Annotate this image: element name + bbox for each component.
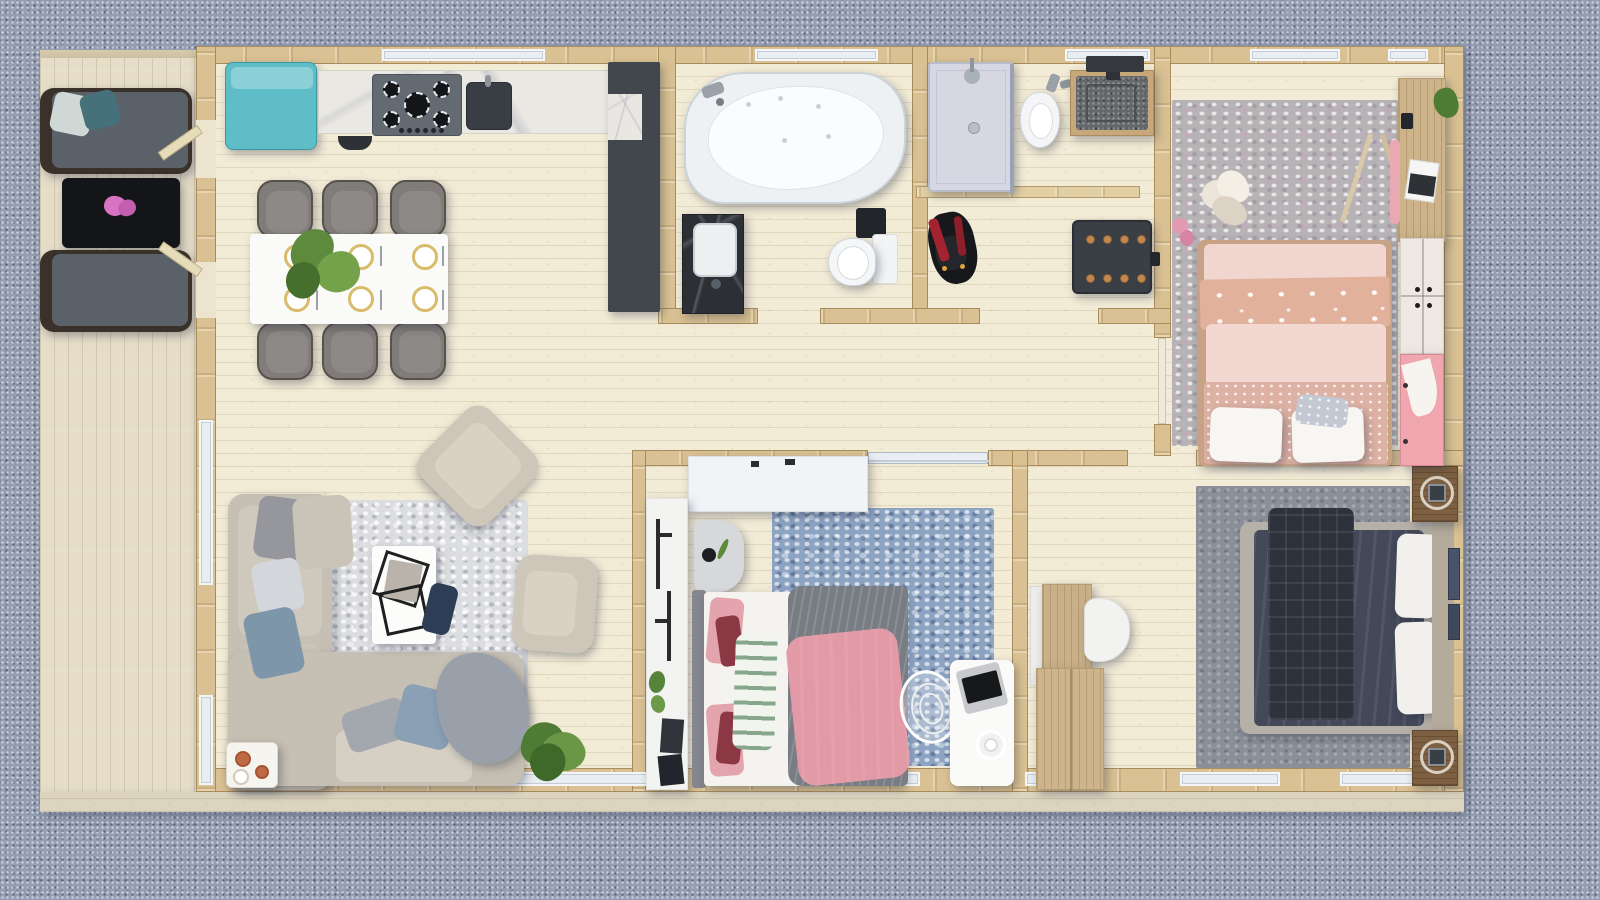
midbedroom-nightstand xyxy=(694,520,744,592)
bathtub-jet-2 xyxy=(778,96,783,101)
cooktop-knob-2 xyxy=(407,128,412,133)
midbed-throw-pink xyxy=(784,627,911,788)
utility-heater-stove xyxy=(1072,220,1152,294)
kitchen-tall-unit-marble-top xyxy=(608,94,642,140)
bathtub-jet-4 xyxy=(782,138,787,143)
cutlery-4 xyxy=(316,290,318,310)
master-bed-quilt-dark xyxy=(1268,508,1354,720)
bath2-sink-granite xyxy=(1076,76,1148,130)
chair-seat xyxy=(331,331,373,373)
heater-dot-2 xyxy=(1103,235,1112,244)
heater-dot-7 xyxy=(1120,274,1129,283)
burner-small-1 xyxy=(383,81,400,98)
glass-door-rail xyxy=(869,460,989,462)
chair-seat xyxy=(266,191,308,233)
backpack-buckle-2 xyxy=(960,264,965,269)
bathtub-faucet-knob xyxy=(716,98,724,106)
shower-tray xyxy=(928,62,1014,192)
utility-backpack xyxy=(926,206,980,290)
serving-tray xyxy=(226,742,278,788)
master-nightstand-north xyxy=(1412,466,1458,522)
wall-rail-hook-1 xyxy=(660,533,672,537)
master-wall-art-2 xyxy=(1448,604,1460,640)
master-wall-art-1 xyxy=(1448,548,1460,600)
cutlery-3 xyxy=(442,246,444,266)
heater-handle xyxy=(1150,252,1160,266)
cup-orange-1 xyxy=(235,751,251,767)
shower-glass-edge xyxy=(1010,64,1014,194)
cutlery-2 xyxy=(380,246,382,266)
wardrobe-knob-4 xyxy=(1427,303,1432,308)
kitchen-counter-marble xyxy=(318,70,610,134)
door-leaf-kidsroom xyxy=(1158,338,1166,424)
headphones-pad xyxy=(984,738,998,752)
cutlery-6 xyxy=(442,290,444,310)
wall-livingroom-midbedroom xyxy=(632,450,646,792)
toilet2-seat xyxy=(1029,103,1053,139)
bathtub-corner xyxy=(684,72,906,204)
sofa-pillow-light xyxy=(250,556,306,616)
place-setting-plate-6 xyxy=(412,286,438,312)
fridge-top-highlight xyxy=(231,67,313,89)
wall-bath-south-b xyxy=(820,308,980,324)
wall-bath2-kidsroom-lower xyxy=(1154,424,1171,456)
dresser-plant-2 xyxy=(649,694,666,715)
toilet1-seat xyxy=(837,246,869,280)
wall-bedrooms-north-b xyxy=(988,450,1128,466)
wardrobe-knob-3 xyxy=(1415,303,1420,308)
nightstand-square-decor xyxy=(1428,484,1446,502)
kids-cushion-gray-dotted xyxy=(1295,393,1350,428)
window-left-living-a xyxy=(199,420,213,585)
nightstand-sprig xyxy=(716,538,731,560)
tray-plate xyxy=(233,769,249,785)
burner-small-2 xyxy=(433,81,450,98)
shower-drain xyxy=(968,122,980,134)
sink-faucet xyxy=(485,75,491,87)
heater-dot-3 xyxy=(1120,235,1129,244)
outdoor-sofa-cushion-b xyxy=(52,254,188,326)
toilet1-bowl xyxy=(828,238,876,286)
midbed-quilt-roll-green xyxy=(732,633,778,750)
cup-orange-2 xyxy=(255,765,269,779)
armchair-right xyxy=(511,553,599,654)
kitchen-sink xyxy=(466,82,512,130)
dining-chair-top-2 xyxy=(322,180,378,238)
wall-rail-hook-2 xyxy=(655,619,667,623)
glass-door-midbedroom xyxy=(868,452,988,464)
chair-seat xyxy=(399,191,441,233)
cooktop-knob-1 xyxy=(399,128,404,133)
window-bottom-master-b xyxy=(1180,772,1280,786)
dining-chair-top-1 xyxy=(257,180,313,238)
bathtub-basin xyxy=(708,86,884,190)
window-left-living-b xyxy=(199,695,213,785)
master-cabinet-tall xyxy=(1036,668,1104,790)
kids-wardrobe-white xyxy=(1400,238,1444,354)
dining-chair-top-3 xyxy=(390,180,446,238)
dresser-frame-dark-1 xyxy=(660,718,684,753)
dining-chair-bottom-3 xyxy=(390,322,446,380)
wardrobe-pink-knob-2 xyxy=(1403,439,1408,444)
cooktop-knob-6 xyxy=(439,128,444,133)
window-bottom-master-c xyxy=(1340,772,1420,786)
kids-toy-pink-2 xyxy=(1180,230,1194,246)
burner-small-4 xyxy=(433,111,450,128)
bath1-sink-marble-counter xyxy=(682,214,744,314)
armchair-cushion xyxy=(522,570,578,637)
window-top-kitchen xyxy=(382,49,545,61)
kids-pillow-1 xyxy=(1209,407,1283,463)
dresser-frame-dark-2 xyxy=(657,754,684,786)
wall-rail-bracket-v2 xyxy=(667,591,671,661)
master-nightstand-south xyxy=(1412,730,1458,786)
toilet2-bowl xyxy=(1020,92,1060,148)
burner-large xyxy=(404,92,430,118)
heater-dot-8 xyxy=(1137,274,1146,283)
nightstand-square-decor xyxy=(1428,748,1446,766)
shower-arm xyxy=(970,58,974,72)
window-top-kidsdesk xyxy=(1388,49,1428,61)
cooktop xyxy=(372,74,462,136)
wall-bath2-kidsroom-upper xyxy=(1154,46,1171,338)
burner-small-3 xyxy=(383,111,400,128)
midbedroom-wardrobe-white xyxy=(688,456,868,512)
bathtub-jet-3 xyxy=(816,104,821,109)
cabinet-divider xyxy=(1070,669,1072,791)
wall-midbedroom-master xyxy=(1012,450,1028,792)
backpack-buckle-1 xyxy=(942,266,947,271)
cooktop-knob-3 xyxy=(415,128,420,133)
bottom-step-board xyxy=(40,792,1464,812)
wardrobe-seam-v xyxy=(1422,239,1424,355)
window-top-kidsroom xyxy=(1250,49,1340,61)
chair-seat xyxy=(399,331,441,373)
desk-phone xyxy=(1401,113,1413,129)
kids-star-blanket xyxy=(1200,276,1391,329)
wall-rail-bracket-v1 xyxy=(656,519,660,589)
dining-chair-bottom-2 xyxy=(322,322,378,380)
midbedroom-desk xyxy=(950,660,1014,786)
fridge-teal xyxy=(225,62,317,150)
armchair-cushion xyxy=(430,418,526,514)
floorplan-canvas xyxy=(0,0,1600,900)
sofa-pillow-beige xyxy=(292,494,355,570)
wardrobe-handle-dot-2 xyxy=(785,459,795,465)
cooktop-knob-5 xyxy=(431,128,436,133)
dining-chair-bottom-1 xyxy=(257,322,313,380)
midbedroom-dresser-panel xyxy=(646,498,688,790)
desk-photo-dark xyxy=(1408,173,1437,196)
wardrobe-pink-accent xyxy=(1401,358,1443,418)
kids-chair-pink-strip xyxy=(1390,140,1400,224)
kids-wardrobe-pink xyxy=(1400,354,1444,466)
heater-dot-5 xyxy=(1086,274,1095,283)
heater-dot-1 xyxy=(1086,235,1095,244)
bath2-basin-line xyxy=(1086,84,1136,122)
place-setting-plate-3 xyxy=(412,244,438,270)
wardrobe-knob-1 xyxy=(1415,287,1420,292)
wall-kitchen-bath1 xyxy=(658,46,676,322)
cooktop-knob-4 xyxy=(423,128,428,133)
wardrobe-knob-2 xyxy=(1427,287,1432,292)
bathtub-jet-5 xyxy=(826,134,831,139)
bathtub-jet-1 xyxy=(746,102,751,107)
cutlery-5 xyxy=(380,290,382,310)
wardrobe-handle-dot-1 xyxy=(751,461,759,467)
wardrobe-pink-knob-1 xyxy=(1403,383,1408,388)
place-setting-plate-5 xyxy=(348,286,374,312)
kids-bed-duvet xyxy=(1206,324,1386,386)
heater-dot-6 xyxy=(1103,274,1112,283)
bath2-wall-shelf-dark xyxy=(1086,56,1144,72)
heater-dot-4 xyxy=(1137,235,1146,244)
window-top-bath1 xyxy=(755,49,878,61)
bath1-sink-faucet xyxy=(711,279,721,289)
chair-seat xyxy=(266,331,308,373)
bath1-sink-basin xyxy=(693,223,737,277)
wall-bath-south-c xyxy=(1098,308,1171,324)
nightstand-cup-black xyxy=(702,548,716,562)
dresser-plant-1 xyxy=(647,670,667,694)
chair-seat xyxy=(331,191,373,233)
